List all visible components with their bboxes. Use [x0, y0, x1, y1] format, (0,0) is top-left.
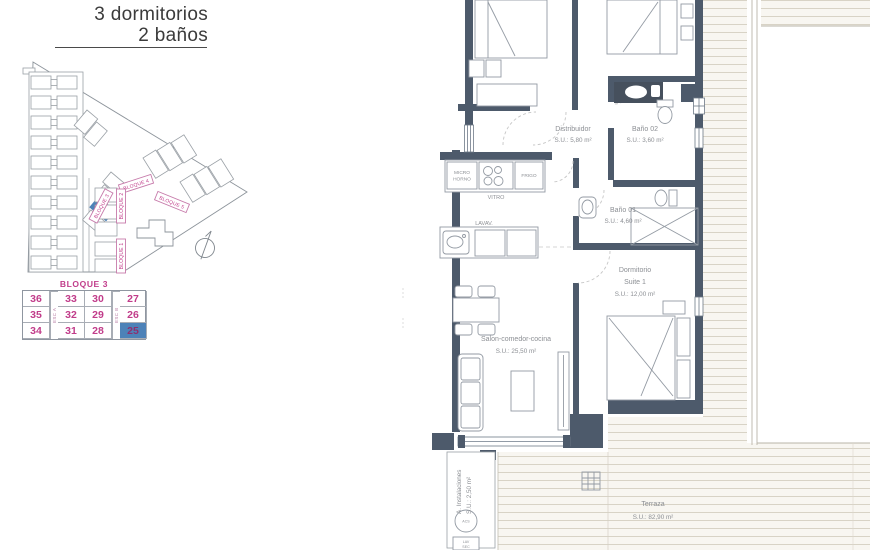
micro-label: MICRO [454, 170, 470, 176]
plan-title: 3 dormitorios 2 baños [30, 4, 208, 46]
terraza-label: Terraza [641, 501, 664, 508]
bathroom2-fixtures [614, 82, 673, 124]
coffee-table-icon [511, 371, 534, 411]
chair-icon [455, 324, 472, 335]
sofa-icon [458, 354, 483, 431]
dining-table-icon [453, 298, 499, 322]
suite-area: S.U.: 12,00 m² [615, 291, 656, 298]
title-underline [55, 47, 207, 48]
svg-text:BLOQUE 2: BLOQUE 2 [119, 193, 125, 220]
terrace-boundaries [498, 0, 870, 550]
distribuidor-label: Distribuidor [555, 126, 591, 133]
unit-cell: 32 [58, 307, 85, 323]
drain-grate-icon [582, 472, 600, 490]
site-plan: BLOQUE 3 BLOQUE 4 BLOQUE 5 BLOQUE 2 BLOQ… [15, 60, 250, 278]
bedroom1-furniture [469, 0, 547, 106]
bano01-area: S.U.: 4,60 m² [604, 218, 641, 225]
compass-icon [192, 228, 220, 263]
chair-icon [455, 286, 472, 297]
bano02-area: S.U.: 3,60 m² [626, 137, 663, 144]
salon-area: S.U.: 25,50 m² [496, 348, 537, 355]
vitro-label: VITRO [488, 195, 506, 201]
distribuidor-area: S.U.: 5,80 m² [554, 137, 591, 144]
plan-title-bedrooms: 3 dormitorios [30, 4, 208, 25]
unit-cell: 36 [23, 291, 50, 307]
suite-label-1: Dormitorio [619, 267, 651, 274]
apartment-floor-plan: Distribuidor S.U.: 5,80 m² Baño 02 S.U.:… [395, 0, 870, 550]
suite-furniture [607, 301, 690, 400]
lavav-label: LAVAV. [475, 221, 493, 227]
svg-text:BLOQUE 1: BLOQUE 1 [119, 243, 125, 270]
unit-cell: 26 [120, 307, 147, 323]
floorplan-page: 3 dormitorios 2 baños [0, 0, 870, 550]
bano01-label: Baño 01 [610, 207, 636, 214]
door-arcs [403, 84, 634, 330]
unit-table-title: BLOQUE 3 [22, 279, 146, 289]
unit-cell: 31 [58, 323, 85, 339]
unit-cell: 33 [58, 291, 85, 307]
instalaciones-label: A. Instalaciones [456, 470, 463, 514]
unit-cell-selected: 25 [120, 323, 147, 339]
water-heater-label: ACS [462, 520, 470, 524]
nightstand-icon [663, 301, 685, 314]
suite-label-2: Suite 1 [624, 279, 646, 286]
site-tag-bloque2: BLOQUE 2 [117, 189, 126, 223]
site-left-strip [29, 72, 89, 272]
instalaciones-area: S.U.: 2,50 m² [466, 477, 473, 514]
toilet-icon [657, 100, 673, 107]
plan-title-bathrooms: 2 baños [30, 25, 208, 46]
bano02-label: Baño 02 [632, 126, 658, 133]
terraza-area: S.U.: 82,90 m² [633, 514, 674, 521]
unit-cell: 29 [85, 307, 112, 323]
dryer-label: SEC [462, 545, 470, 549]
unit-cell: 34 [23, 323, 50, 339]
unit-cell: 35 [23, 307, 50, 323]
unit-table-grid: 36 ESC A 33 30 ESC B 27 35 32 29 26 34 3… [22, 290, 146, 340]
chair-icon [478, 286, 495, 297]
frigo-label: FRIGO [521, 173, 536, 179]
unit-table: BLOQUE 3 36 ESC A 33 30 ESC B 27 35 32 2… [22, 279, 146, 340]
site-tag-bloque1: BLOQUE 1 [117, 239, 126, 273]
unit-cell: 27 [120, 291, 147, 307]
stair-a-label: ESC A [50, 291, 58, 339]
stair-b-label: ESC B [112, 291, 120, 339]
unit-cell: 28 [85, 323, 112, 339]
bedroom2-furniture [607, 0, 693, 54]
unit-cell: 30 [85, 291, 112, 307]
salon-label: Salon-comedor-cocina [481, 336, 551, 343]
chair-icon [478, 324, 495, 335]
horno-label: HORNO [453, 177, 471, 183]
washer-label: LAV [463, 540, 470, 544]
toilet-icon [669, 190, 677, 206]
living-furniture [453, 286, 569, 431]
